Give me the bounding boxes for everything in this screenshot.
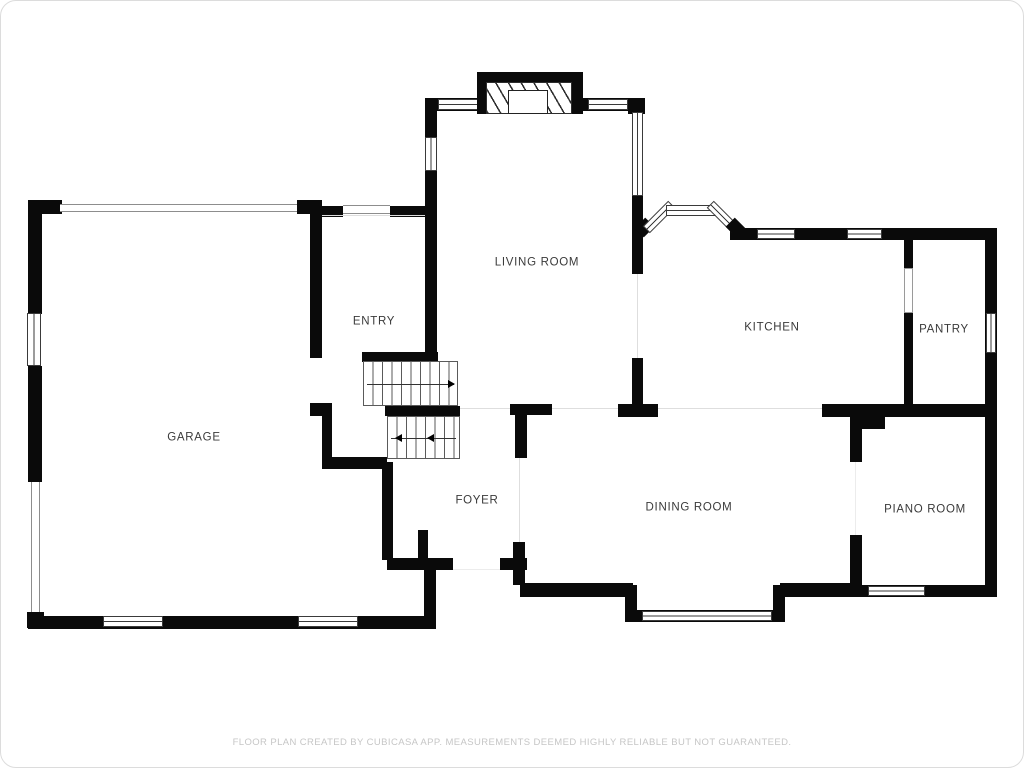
image-rounded-border (0, 0, 1024, 768)
window (425, 137, 437, 171)
room-label-pantry: PANTRY (919, 324, 969, 336)
firebox (508, 90, 548, 114)
room-label-piano: PIANO ROOM (884, 504, 966, 516)
wall-segment (418, 530, 428, 560)
piano-door-opening (855, 462, 856, 535)
stair-run-line (391, 438, 456, 439)
stairs-down (387, 416, 460, 459)
down-arrow-icon (427, 434, 434, 442)
room-label-foyer: FOYER (455, 495, 498, 507)
wall-segment (985, 417, 997, 597)
opening-line (637, 274, 638, 358)
window (847, 229, 882, 239)
window (642, 611, 772, 621)
room-label-kitchen: KITCHEN (744, 322, 799, 334)
up-arrow-icon (448, 380, 455, 388)
wall-segment (618, 404, 658, 417)
wall-segment (520, 583, 633, 597)
opening-line (658, 408, 822, 409)
wall-segment (310, 200, 322, 358)
wall-segment (780, 583, 860, 597)
entry-door-opening (343, 205, 390, 214)
opening-line (458, 408, 510, 409)
wall-segment (28, 200, 42, 314)
wall-segment (28, 366, 42, 482)
wall-segment (850, 414, 862, 462)
window (103, 616, 163, 627)
down-arrow-icon (395, 434, 402, 442)
wall-segment (904, 233, 913, 269)
floor-plan: LIVING ROOM ENTRY KITCHEN PANTRY GARAGE … (0, 0, 1024, 768)
window (757, 229, 795, 239)
room-label-garage: GARAGE (167, 432, 220, 444)
wall-segment (382, 462, 393, 560)
window (986, 313, 996, 353)
wall-segment (904, 312, 913, 414)
wall-segment (424, 566, 436, 629)
window (588, 99, 628, 110)
stair-divider-wall (385, 406, 460, 416)
pantry-door (904, 268, 913, 313)
opening-line (552, 408, 618, 409)
wall-segment (322, 457, 387, 469)
wall-segment (632, 358, 643, 406)
garage-door (60, 204, 297, 212)
window (868, 586, 925, 596)
wall-segment (822, 404, 997, 417)
wall-segment (500, 558, 527, 570)
room-label-dining: DINING ROOM (646, 502, 733, 514)
window (438, 99, 478, 110)
window (27, 313, 41, 366)
wall-segment (28, 616, 435, 629)
stair-run-line (367, 384, 454, 385)
front-door-opening (453, 569, 500, 570)
opening-line (322, 215, 425, 216)
room-label-entry: ENTRY (353, 316, 395, 328)
stairs-up (363, 361, 458, 406)
garage-side-door (31, 482, 40, 612)
window (298, 616, 358, 627)
wall-segment (515, 408, 527, 458)
opening-line (519, 458, 520, 542)
room-label-living: LIVING ROOM (495, 257, 579, 269)
footer-disclaimer: FLOOR PLAN CREATED BY CUBICASA APP. MEAS… (0, 737, 1024, 748)
window (632, 112, 643, 196)
